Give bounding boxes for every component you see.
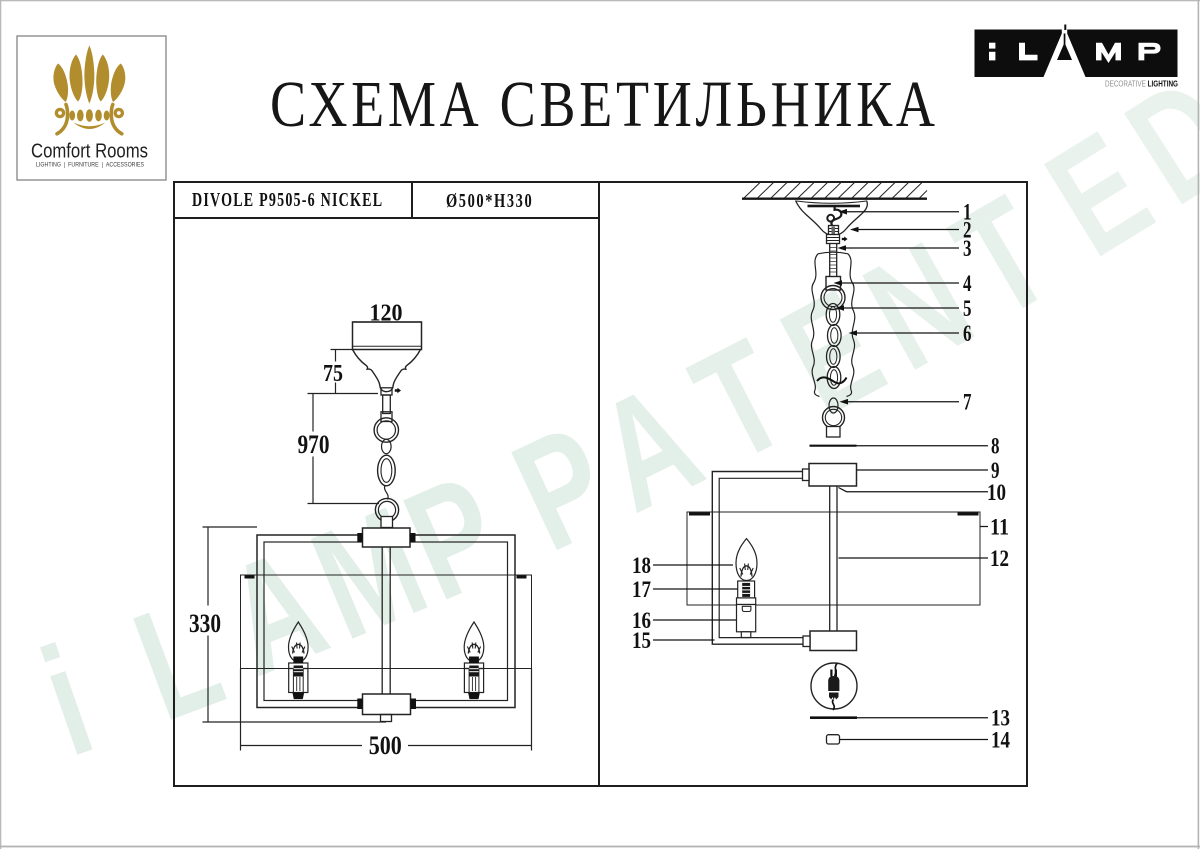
svg-text:120: 120 — [370, 301, 403, 327]
svg-text:3: 3 — [963, 236, 972, 261]
svg-text:970: 970 — [298, 430, 330, 459]
svg-text:12: 12 — [990, 546, 1009, 571]
svg-text:Comfort Rooms: Comfort Rooms — [31, 141, 148, 163]
svg-text:330: 330 — [189, 609, 221, 638]
svg-text:500: 500 — [369, 731, 402, 760]
svg-text:DIVOLE P9505-6 NICKEL: DIVOLE P9505-6 NICKEL — [192, 189, 382, 211]
svg-text:17: 17 — [632, 577, 651, 602]
svg-text:LIGHTING | FURNITURE | ACC: LIGHTING | FURNITURE | ACCESSORIES — [36, 162, 144, 169]
svg-text:8: 8 — [991, 434, 1000, 459]
svg-text:Ø500*H330: Ø500*H330 — [446, 189, 532, 212]
svg-text:75: 75 — [323, 361, 343, 387]
svg-text:DECORATIVE LIGHTING: DECORATIVE LIGHTING — [1105, 80, 1178, 89]
svg-text:7: 7 — [963, 390, 972, 415]
svg-text:14: 14 — [991, 728, 1010, 753]
svg-text:5: 5 — [963, 296, 972, 321]
svg-text:i: i — [23, 614, 111, 790]
svg-text:15: 15 — [632, 628, 651, 653]
svg-text:СХЕМА СВЕТИЛЬНИКА: СХЕМА СВЕТИЛЬНИКА — [270, 68, 935, 141]
svg-text:10: 10 — [987, 480, 1006, 505]
svg-text:18: 18 — [632, 553, 651, 578]
svg-text:4: 4 — [963, 271, 972, 296]
svg-text:6: 6 — [963, 321, 972, 346]
svg-text:11: 11 — [990, 515, 1009, 540]
